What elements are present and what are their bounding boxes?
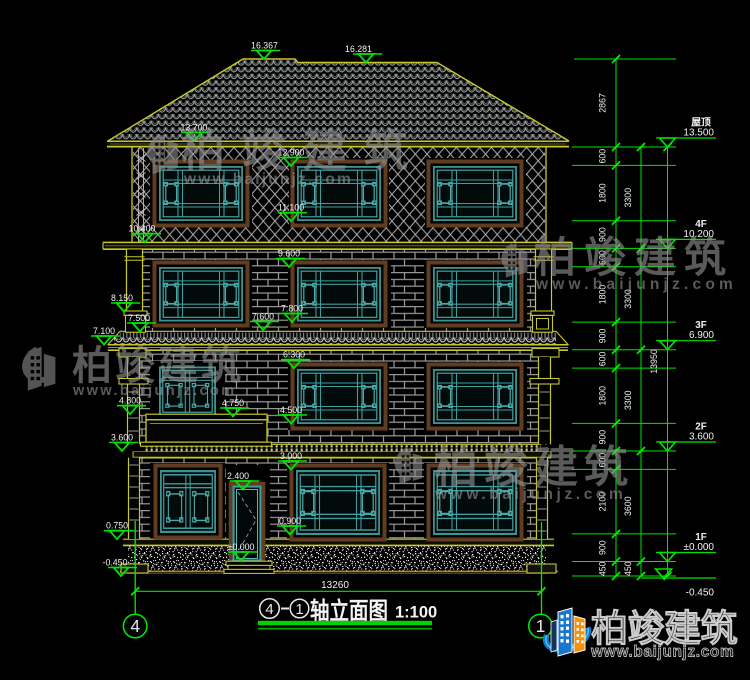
- svg-text:7.500: 7.500: [128, 313, 150, 323]
- svg-text:900: 900: [598, 328, 608, 343]
- svg-text:柏竣建筑: 柏竣建筑: [534, 234, 734, 281]
- svg-text:2.400: 2.400: [227, 471, 249, 481]
- svg-text:4: 4: [130, 616, 140, 636]
- svg-text:1800: 1800: [598, 183, 608, 203]
- svg-text:2867: 2867: [598, 93, 608, 113]
- svg-text:3.000: 3.000: [280, 451, 302, 461]
- svg-text:600: 600: [598, 149, 608, 164]
- svg-text:3300: 3300: [623, 188, 633, 208]
- svg-text:1: 1: [295, 601, 303, 618]
- svg-text:0.900: 0.900: [279, 516, 301, 526]
- svg-text:1800: 1800: [598, 386, 608, 406]
- svg-text:10.400: 10.400: [129, 224, 156, 234]
- svg-text:柏竣建筑: 柏竣建筑: [181, 127, 425, 176]
- svg-text:3.600: 3.600: [689, 432, 714, 443]
- svg-text:轴立面图: 轴立面图: [310, 597, 388, 625]
- svg-text:3.600: 3.600: [111, 433, 133, 443]
- svg-text:8.150: 8.150: [111, 293, 133, 303]
- svg-text:1:100: 1:100: [395, 604, 437, 622]
- svg-text:450: 450: [598, 561, 608, 576]
- svg-text:900: 900: [598, 540, 608, 555]
- svg-text:-0.450: -0.450: [103, 558, 128, 568]
- svg-text:3300: 3300: [623, 390, 633, 410]
- svg-text:±0.000: ±0.000: [228, 542, 255, 552]
- svg-text:13950: 13950: [649, 349, 659, 374]
- svg-text:11.100: 11.100: [278, 203, 304, 213]
- svg-text:16.367: 16.367: [251, 41, 278, 51]
- svg-text:-0.450: -0.450: [686, 588, 715, 599]
- svg-text:13260: 13260: [321, 580, 349, 591]
- svg-text:7.600: 7.600: [252, 312, 274, 322]
- svg-text:www.baijunjz.com: www.baijunjz.com: [535, 276, 737, 293]
- svg-text:www.baijunjz.com: www.baijunjz.com: [72, 383, 237, 399]
- svg-text:1: 1: [536, 616, 546, 636]
- svg-text:www.baijunjz.com: www.baijunjz.com: [590, 644, 734, 661]
- svg-text:4.500: 4.500: [280, 405, 302, 415]
- svg-text:4: 4: [265, 601, 273, 618]
- svg-text:柏竣建筑: 柏竣建筑: [434, 443, 634, 492]
- svg-text:www.baijunjz.com: www.baijunjz.com: [434, 486, 626, 503]
- svg-text:6.900: 6.900: [689, 330, 714, 341]
- svg-text:7.800: 7.800: [281, 304, 303, 314]
- svg-text:450: 450: [623, 561, 633, 576]
- svg-text:9.600: 9.600: [278, 249, 300, 259]
- svg-text:600: 600: [598, 351, 608, 366]
- svg-text:16.281: 16.281: [345, 44, 372, 54]
- svg-text:www.baijunjz.com: www.baijunjz.com: [183, 171, 353, 188]
- svg-text:0.750: 0.750: [106, 521, 128, 531]
- svg-text:13.500: 13.500: [683, 128, 714, 139]
- svg-text:4.750: 4.750: [222, 398, 244, 408]
- svg-text:±0.000: ±0.000: [683, 542, 714, 553]
- svg-text:6.300: 6.300: [283, 350, 305, 360]
- svg-text:柏竣建筑: 柏竣建筑: [72, 344, 244, 388]
- svg-text:7.100: 7.100: [93, 326, 115, 336]
